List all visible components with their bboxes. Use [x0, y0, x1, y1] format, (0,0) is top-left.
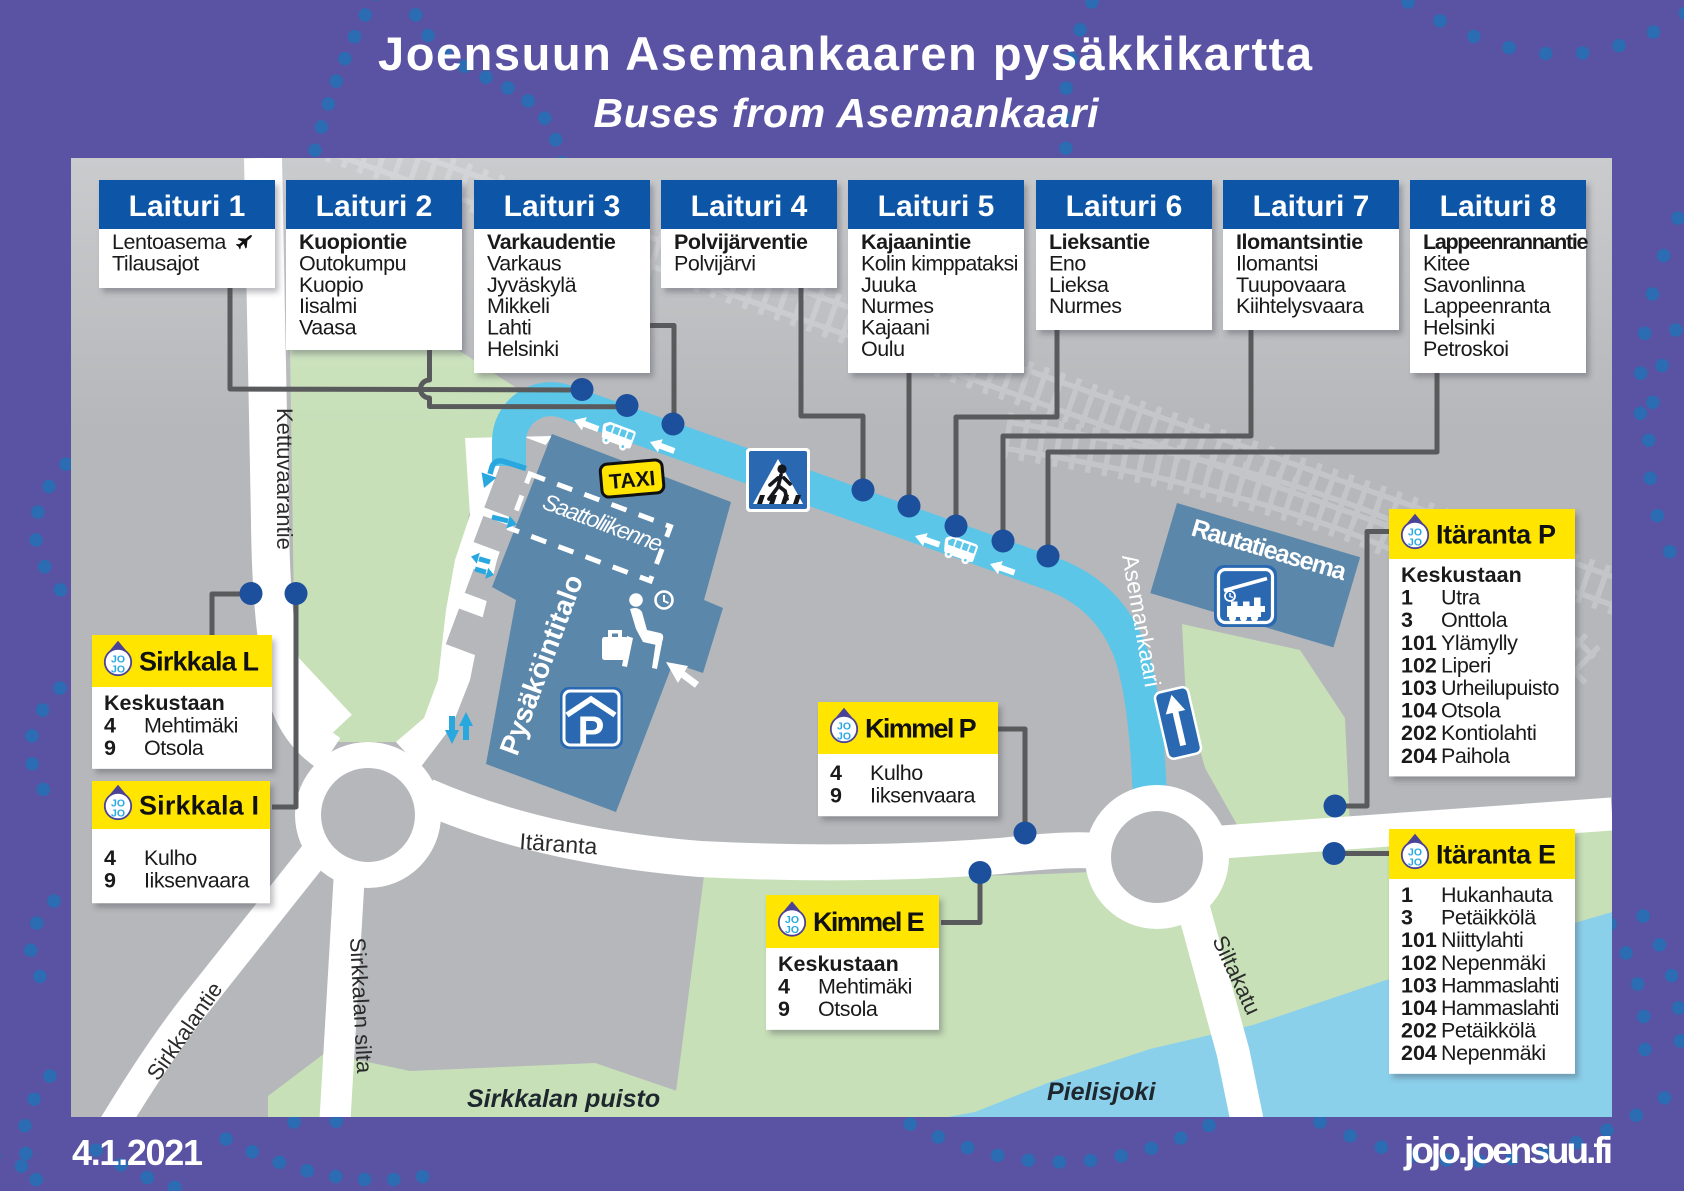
svg-text:Lahti: Lahti — [487, 316, 531, 340]
svg-text:Kuopiontie: Kuopiontie — [299, 230, 407, 254]
svg-text:Lappeenranta: Lappeenranta — [1423, 294, 1551, 318]
svg-text:Kajaani: Kajaani — [861, 316, 930, 340]
svg-text:4.1.2021: 4.1.2021 — [72, 1132, 203, 1173]
svg-text:Oulu: Oulu — [861, 337, 905, 361]
svg-text:Otsola: Otsola — [818, 997, 878, 1021]
svg-text:4: 4 — [104, 846, 116, 870]
svg-text:101: 101 — [1401, 631, 1437, 655]
svg-text:Laituri 5: Laituri 5 — [878, 190, 995, 223]
svg-text:Kajaanintie: Kajaanintie — [861, 230, 971, 254]
svg-text:Hukanhauta: Hukanhauta — [1441, 883, 1553, 907]
svg-text:Eno: Eno — [1049, 251, 1086, 275]
svg-text:Helsinki: Helsinki — [487, 337, 559, 361]
svg-text:Onttola: Onttola — [1441, 608, 1508, 632]
svg-text:Keskustaan: Keskustaan — [104, 691, 225, 715]
svg-text:Pielisjoki: Pielisjoki — [1047, 1078, 1156, 1106]
svg-text:4: 4 — [830, 761, 842, 785]
svg-text:Petäikkölä: Petäikkölä — [1441, 1019, 1536, 1043]
svg-text:Kuopio: Kuopio — [299, 273, 364, 297]
svg-text:Liperi: Liperi — [1441, 653, 1491, 677]
svg-text:Lentoasema: Lentoasema — [112, 230, 226, 254]
svg-text:Buses from Asemankaari: Buses from Asemankaari — [594, 90, 1101, 136]
svg-text:103: 103 — [1401, 973, 1437, 997]
svg-text:Itäranta P: Itäranta P — [1436, 520, 1556, 550]
svg-text:Keskustaan: Keskustaan — [1401, 563, 1522, 587]
svg-text:Iisalmi: Iisalmi — [299, 294, 357, 318]
svg-text:9: 9 — [778, 997, 790, 1021]
svg-text:Otsola: Otsola — [1441, 699, 1501, 723]
svg-text:204: 204 — [1401, 744, 1437, 768]
svg-text:Ylämylly: Ylämylly — [1441, 631, 1518, 655]
svg-text:P: P — [578, 709, 605, 753]
svg-text:Urheilupuisto: Urheilupuisto — [1441, 676, 1559, 700]
svg-text:Iiksenvaara: Iiksenvaara — [144, 869, 249, 893]
svg-text:Sirkkalan puisto: Sirkkalan puisto — [467, 1085, 660, 1113]
svg-text:Utra: Utra — [1441, 586, 1480, 610]
svg-text:Kulho: Kulho — [144, 846, 197, 870]
svg-text:104: 104 — [1401, 996, 1437, 1020]
svg-text:Ilomantsintie: Ilomantsintie — [1236, 230, 1363, 254]
svg-text:Paihola: Paihola — [1441, 744, 1510, 768]
svg-text:1: 1 — [1401, 883, 1413, 907]
svg-text:Kulho: Kulho — [870, 761, 923, 785]
svg-text:Petroskoi: Petroskoi — [1423, 337, 1509, 361]
svg-text:Joensuun Asemankaaren pysäkkik: Joensuun Asemankaaren pysäkkikartta — [378, 27, 1313, 80]
svg-text:1: 1 — [1401, 586, 1413, 610]
svg-text:Kolin kimppataksi: Kolin kimppataksi — [861, 251, 1018, 275]
svg-text:101: 101 — [1401, 928, 1437, 952]
svg-text:Laituri 7: Laituri 7 — [1253, 190, 1370, 223]
svg-text:Kitee: Kitee — [1423, 251, 1470, 275]
svg-text:3: 3 — [1401, 906, 1413, 930]
svg-text:104: 104 — [1401, 699, 1437, 723]
svg-text:Lieksa: Lieksa — [1049, 273, 1109, 297]
svg-text:9: 9 — [104, 869, 116, 893]
svg-text:Keskustaan: Keskustaan — [778, 952, 899, 976]
svg-text:Itäranta E: Itäranta E — [1436, 840, 1556, 870]
svg-text:103: 103 — [1401, 676, 1437, 700]
svg-text:Laituri 3: Laituri 3 — [504, 190, 621, 223]
svg-text:Laituri 4: Laituri 4 — [691, 190, 808, 223]
svg-text:Mehtimäki: Mehtimäki — [818, 975, 912, 999]
svg-text:Tilausajot: Tilausajot — [112, 251, 199, 275]
svg-text:Kimmel P: Kimmel P — [865, 714, 977, 744]
svg-text:TAXI: TAXI — [608, 467, 656, 494]
svg-text:Juuka: Juuka — [861, 273, 917, 297]
svg-text:Varkaudentie: Varkaudentie — [487, 230, 616, 254]
svg-text:9: 9 — [830, 784, 842, 808]
svg-text:4: 4 — [104, 714, 116, 738]
svg-text:Niittylahti: Niittylahti — [1441, 928, 1523, 952]
svg-text:4: 4 — [778, 975, 790, 999]
svg-text:Tuupovaara: Tuupovaara — [1236, 273, 1346, 297]
svg-text:202: 202 — [1401, 1019, 1437, 1043]
svg-text:Helsinki: Helsinki — [1423, 316, 1495, 340]
svg-text:Mehtimäki: Mehtimäki — [144, 714, 238, 738]
svg-text:Hammaslahti: Hammaslahti — [1441, 973, 1559, 997]
svg-text:Outokumpu: Outokumpu — [299, 251, 406, 275]
svg-text:204: 204 — [1401, 1041, 1437, 1065]
svg-text:Itäranta: Itäranta — [519, 828, 599, 859]
svg-text:Hammaslahti: Hammaslahti — [1441, 996, 1559, 1020]
svg-text:Savonlinna: Savonlinna — [1423, 273, 1525, 297]
svg-text:Mikkeli: Mikkeli — [487, 294, 550, 318]
svg-text:202: 202 — [1401, 721, 1437, 745]
svg-text:Kimmel E: Kimmel E — [813, 907, 925, 937]
svg-text:Laituri 1: Laituri 1 — [129, 190, 246, 223]
svg-text:Sirkkala I: Sirkkala I — [139, 791, 259, 821]
svg-text:9: 9 — [104, 736, 116, 760]
svg-text:Iiksenvaara: Iiksenvaara — [870, 784, 975, 808]
svg-text:Nepenmäki: Nepenmäki — [1441, 1041, 1546, 1065]
svg-text:Nurmes: Nurmes — [1049, 294, 1122, 318]
svg-text:Polvijärvi: Polvijärvi — [674, 251, 756, 275]
svg-text:Nurmes: Nurmes — [861, 294, 934, 318]
svg-text:Sirkkala L: Sirkkala L — [139, 647, 259, 677]
svg-text:jojo.joensuu.fi: jojo.joensuu.fi — [1403, 1130, 1613, 1171]
svg-text:Ilomantsi: Ilomantsi — [1236, 251, 1318, 275]
svg-text:Kettuvaarantie: Kettuvaarantie — [272, 408, 297, 550]
svg-text:102: 102 — [1401, 653, 1437, 677]
svg-text:Kontiolahti: Kontiolahti — [1441, 721, 1536, 745]
svg-text:Lieksantie: Lieksantie — [1049, 230, 1150, 254]
svg-text:Kiihtelysvaara: Kiihtelysvaara — [1236, 294, 1364, 318]
svg-text:Otsola: Otsola — [144, 736, 204, 760]
svg-text:Laituri 2: Laituri 2 — [316, 190, 433, 223]
svg-text:Polvijärventie: Polvijärventie — [674, 230, 808, 254]
svg-text:Nepenmäki: Nepenmäki — [1441, 951, 1546, 975]
svg-text:Lappeenrannantie: Lappeenrannantie — [1423, 230, 1588, 254]
svg-text:Petäikkölä: Petäikkölä — [1441, 906, 1536, 930]
svg-text:Jyväskylä: Jyväskylä — [487, 273, 577, 297]
svg-text:Laituri 8: Laituri 8 — [1440, 190, 1557, 223]
svg-text:Laituri 6: Laituri 6 — [1066, 190, 1183, 223]
svg-text:Varkaus: Varkaus — [487, 251, 561, 275]
svg-text:Vaasa: Vaasa — [299, 316, 357, 340]
svg-text:3: 3 — [1401, 608, 1413, 632]
svg-text:102: 102 — [1401, 951, 1437, 975]
